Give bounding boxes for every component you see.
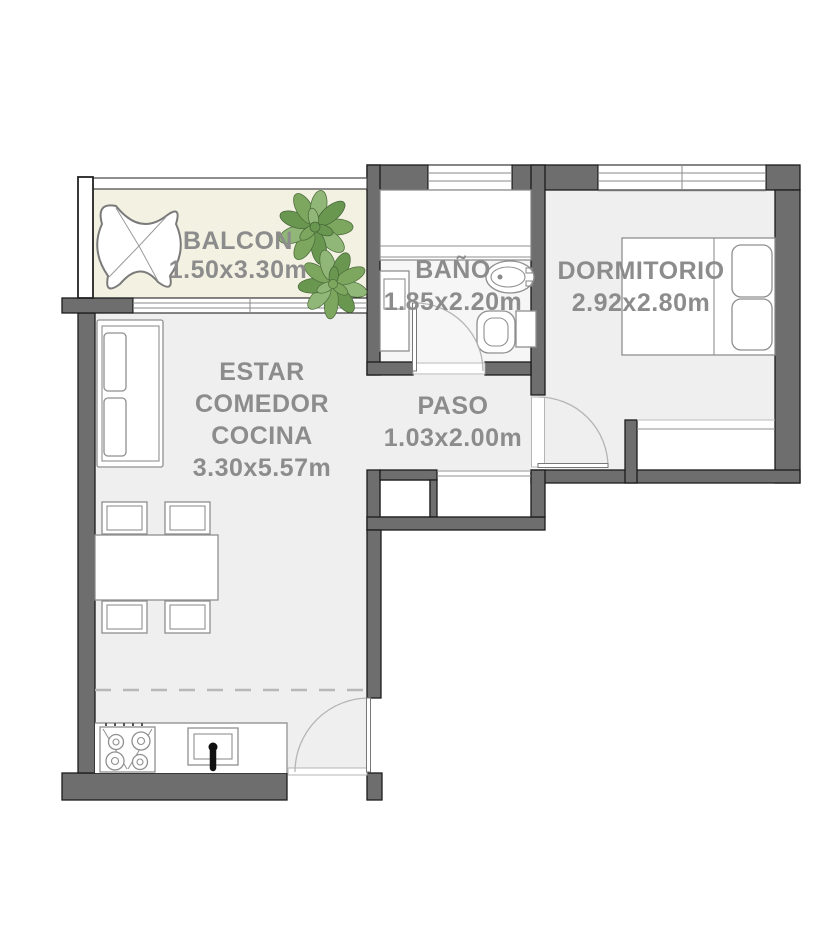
room-name: DORMITORIO	[557, 255, 724, 287]
room-name: ESTAR	[193, 356, 331, 388]
hall-closet-doors	[437, 471, 531, 476]
duct-niche	[380, 480, 430, 517]
room-label-estar-comedor-cocina: ESTAR COMEDOR COCINA 3.30x5.57m	[193, 356, 331, 484]
room-dims: 1.85x2.20m	[384, 286, 522, 318]
wall-duct-right	[430, 480, 437, 517]
room-label-dormitorio: DORMITORIO 2.92x2.80m	[557, 255, 724, 319]
bathtub	[380, 190, 531, 260]
pillow	[732, 299, 772, 350]
chair	[102, 502, 147, 534]
room-name: PASO	[384, 390, 522, 422]
wall-bath-left	[367, 165, 380, 375]
room-dims: 3.30x5.57m	[193, 452, 331, 484]
stove	[100, 723, 155, 772]
room-name: COMEDOR	[193, 388, 331, 420]
wall-bottom-right	[367, 773, 382, 800]
wall-right	[775, 190, 800, 483]
wall-duct-top	[380, 470, 437, 480]
room-label-balcon: BALCON 1.50x3.30m	[169, 227, 307, 285]
wall-living-right	[367, 530, 381, 698]
room-dims: 1.03x2.00m	[384, 422, 522, 454]
pillow	[732, 245, 772, 297]
floor-plan-drawing	[0, 0, 831, 950]
sofa	[97, 320, 163, 467]
wall-balcony-corner	[62, 298, 133, 313]
wall-nicheband-bottom	[367, 517, 545, 530]
wall-nicheband-right	[531, 470, 545, 517]
wall-top-middle	[512, 165, 598, 190]
chair	[102, 601, 147, 633]
room-dims: 1.50x3.30m	[169, 256, 307, 285]
kitchen-sink	[188, 728, 238, 768]
wall-left	[78, 313, 95, 773]
hall-closet-niche	[437, 476, 531, 517]
room-label-paso: PASO 1.03x2.00m	[384, 390, 522, 454]
chair	[165, 601, 210, 633]
balcony-column	[78, 177, 93, 298]
wall-bath-bottom-right	[485, 362, 531, 375]
wall-wardrobe-post	[625, 420, 637, 483]
wall-top-right-corner	[766, 165, 800, 190]
room-label-bano: BAÑO 1.85x2.20m	[384, 254, 522, 318]
wardrobe-niche	[637, 420, 775, 470]
room-name: BAÑO	[384, 254, 522, 286]
floor-plan: BALCON 1.50x3.30m ESTAR COMEDOR COCINA 3…	[0, 0, 831, 950]
bathroom-window	[428, 165, 512, 190]
balcony-railing	[93, 178, 367, 189]
dining-table	[95, 535, 218, 600]
room-dims: 2.92x2.80m	[557, 287, 724, 319]
wall-bottom-left	[62, 773, 287, 800]
room-name: BALCON	[169, 227, 307, 256]
chair	[165, 502, 210, 534]
room-name: COCINA	[193, 420, 331, 452]
kitchen-counter	[95, 723, 287, 773]
wall-bath-bottom-left	[367, 362, 413, 375]
wall-bedroom-bottom	[531, 470, 800, 483]
